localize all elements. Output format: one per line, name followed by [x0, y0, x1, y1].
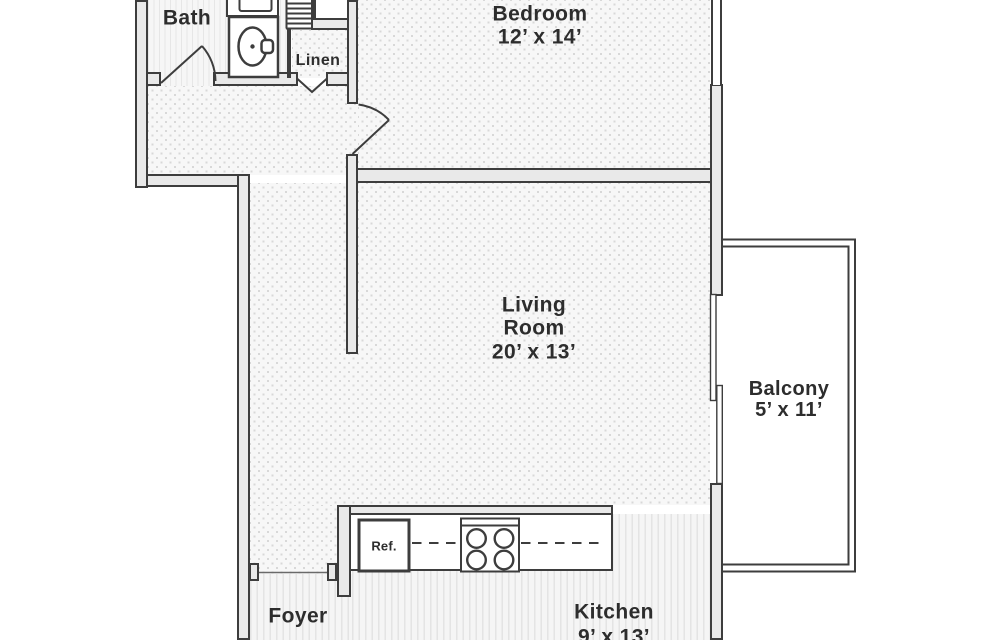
bedroom-door-icon: [353, 105, 390, 155]
bedroom-label: Bedroom: [493, 4, 588, 25]
kitchen-dimensions: 9’ x 13’: [578, 627, 650, 640]
floor-plan: Bath Linen Bedroom 12’ x 14’ Living Room…: [0, 0, 1000, 640]
toilet-icon: [229, 17, 278, 77]
living-room-label-line1: Living: [502, 295, 566, 316]
living-room-dimensions: 20’ x 13’: [492, 342, 576, 363]
foyer-label: Foyer: [268, 606, 327, 627]
linen-label: Linen: [296, 53, 341, 69]
bedroom-dimensions: 12’ x 14’: [498, 27, 582, 48]
stairs-icon: [286, 0, 312, 29]
stove-icon: [461, 519, 519, 572]
fixture-overlay: [0, 0, 1000, 640]
sink-icon: [227, 0, 278, 16]
kitchen-label: Kitchen: [574, 602, 654, 623]
sliding-door-icon: [711, 295, 723, 484]
balcony-label: Balcony: [749, 379, 830, 399]
bath-label: Bath: [163, 8, 211, 29]
bath-door-icon: [161, 46, 216, 83]
linen-bifold-door-icon: [297, 79, 327, 93]
living-room-label-line2: Room: [503, 318, 564, 339]
balcony-dimensions: 5’ x 11’: [755, 400, 823, 420]
refrigerator-label: Ref.: [371, 540, 396, 553]
